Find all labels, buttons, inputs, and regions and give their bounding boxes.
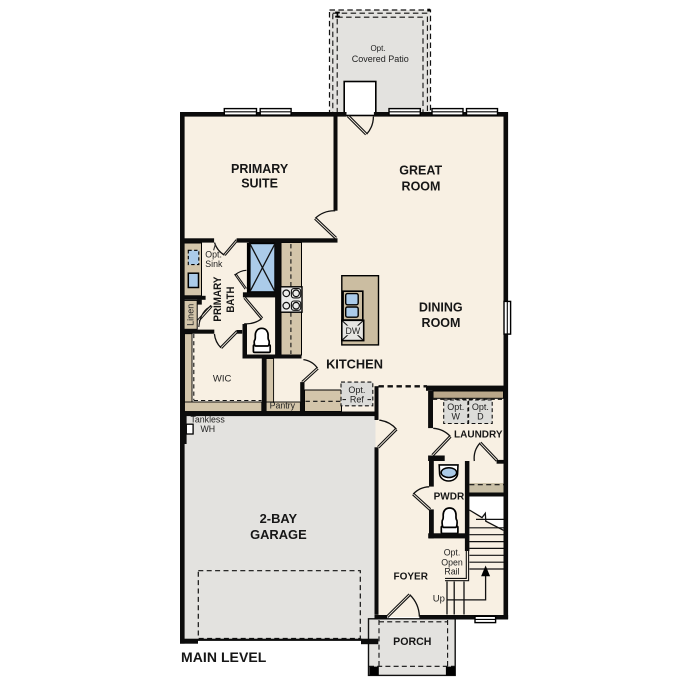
svg-text:GARAGE: GARAGE: [250, 527, 307, 542]
svg-text:DINING: DINING: [419, 300, 463, 314]
svg-text:MAIN LEVEL: MAIN LEVEL: [181, 649, 267, 665]
svg-text:Pantry: Pantry: [270, 401, 296, 411]
svg-text:PRIMARY: PRIMARY: [231, 162, 289, 176]
svg-text:LAUNDRY: LAUNDRY: [454, 430, 503, 441]
svg-text:FOYER: FOYER: [393, 572, 428, 583]
svg-text:PORCH: PORCH: [393, 636, 431, 648]
svg-text:Up: Up: [433, 594, 445, 605]
svg-text:ROOM: ROOM: [402, 180, 441, 194]
svg-text:W: W: [452, 412, 461, 422]
svg-text:Ref: Ref: [350, 395, 365, 405]
svg-text:Opt.: Opt.: [205, 250, 222, 260]
svg-text:SUITE: SUITE: [241, 177, 278, 191]
svg-text:Opt.: Opt.: [447, 402, 464, 412]
svg-text:Opt.: Opt.: [472, 402, 489, 412]
svg-text:GREAT: GREAT: [399, 164, 442, 178]
svg-text:D: D: [477, 412, 484, 422]
svg-text:Opt.: Opt.: [444, 547, 461, 557]
svg-text:DW: DW: [345, 326, 360, 336]
svg-text:WIC: WIC: [213, 374, 232, 385]
svg-text:BATH: BATH: [225, 287, 237, 313]
svg-text:Opt.: Opt.: [370, 44, 385, 53]
svg-text:Opt.: Opt.: [348, 385, 365, 395]
svg-text:KITCHEN: KITCHEN: [326, 357, 383, 372]
svg-text:PRIMARY: PRIMARY: [212, 276, 224, 322]
svg-text:2-BAY: 2-BAY: [260, 511, 298, 526]
svg-text:Sink: Sink: [205, 259, 223, 269]
svg-text:WH: WH: [201, 424, 216, 434]
svg-text:Covered Patio: Covered Patio: [352, 54, 409, 64]
svg-text:Rail: Rail: [444, 567, 459, 577]
svg-text:Linen: Linen: [186, 304, 196, 326]
svg-text:PWDR: PWDR: [434, 492, 465, 503]
svg-text:ROOM: ROOM: [422, 316, 461, 330]
